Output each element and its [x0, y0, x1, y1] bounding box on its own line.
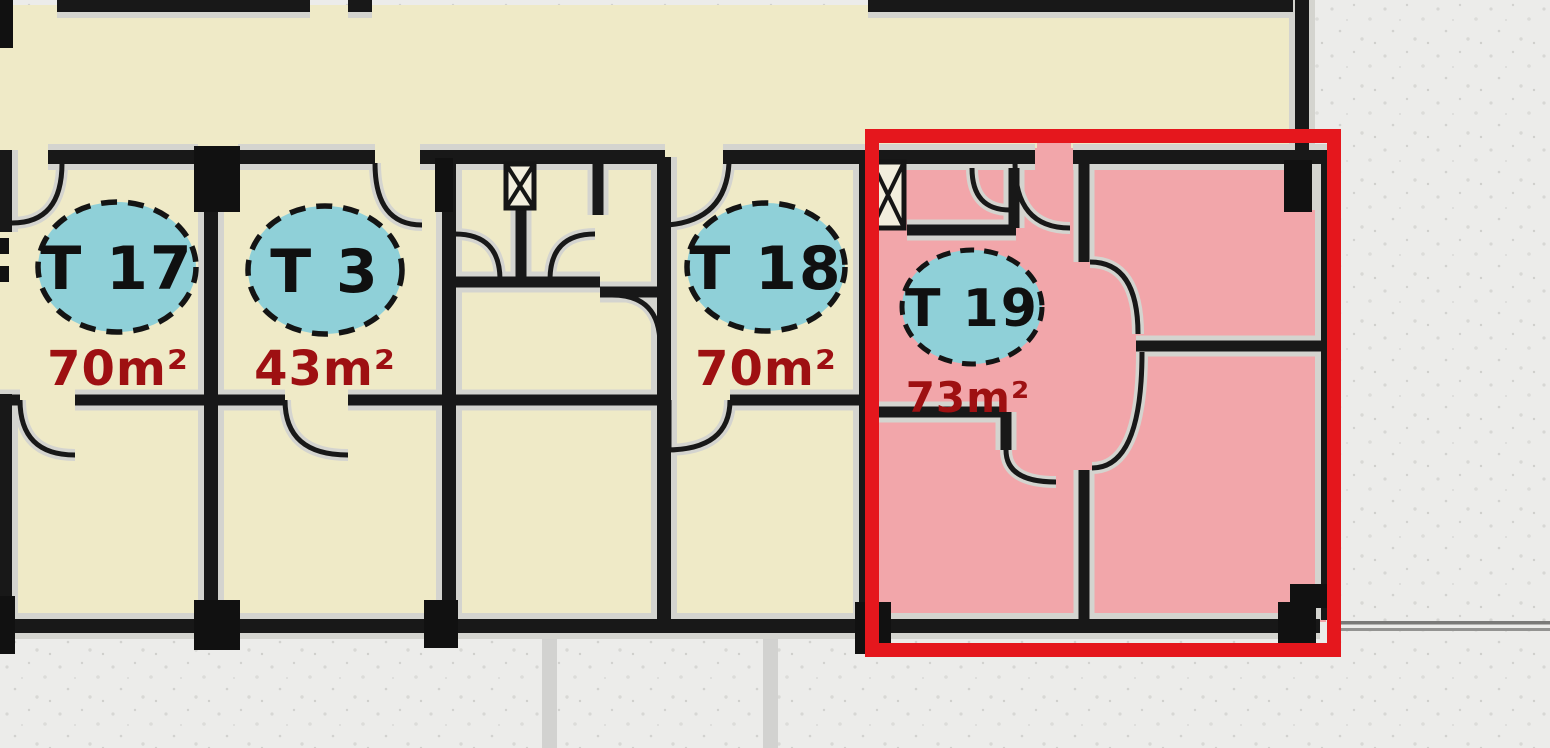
unit-badge-t18[interactable]: T 18 70m²	[687, 203, 845, 397]
unit-area-label: 70m²	[47, 341, 189, 397]
unit-area-label: 43m²	[254, 341, 396, 397]
floor-plan-viewport: T 17 70m² T 3 43m² T 18 70m² T 19 73m²	[0, 0, 1550, 748]
unit-badge-label: T 3	[270, 237, 380, 307]
unit-badge-t3[interactable]: T 3 43m²	[248, 206, 402, 397]
unit-badge-t19[interactable]: T 19 73m²	[902, 250, 1042, 422]
unit-badge-label: T 19	[905, 279, 1039, 339]
unit-badge-label: T 18	[689, 234, 842, 304]
floor-plan: T 17 70m² T 3 43m² T 18 70m² T 19 73m²	[0, 0, 1550, 748]
unit-area-label: 70m²	[695, 341, 837, 397]
unit-area-label: 73m²	[906, 373, 1031, 422]
sidewalk-joint	[542, 633, 557, 748]
site-boundary-line	[1334, 628, 1550, 631]
site-boundary-line	[1334, 621, 1550, 625]
unit-badge-label: T 17	[40, 234, 193, 304]
unit-badge-t17[interactable]: T 17 70m²	[38, 202, 196, 397]
shaft-x-icon	[506, 164, 534, 208]
sidewalk-joint	[763, 633, 778, 748]
